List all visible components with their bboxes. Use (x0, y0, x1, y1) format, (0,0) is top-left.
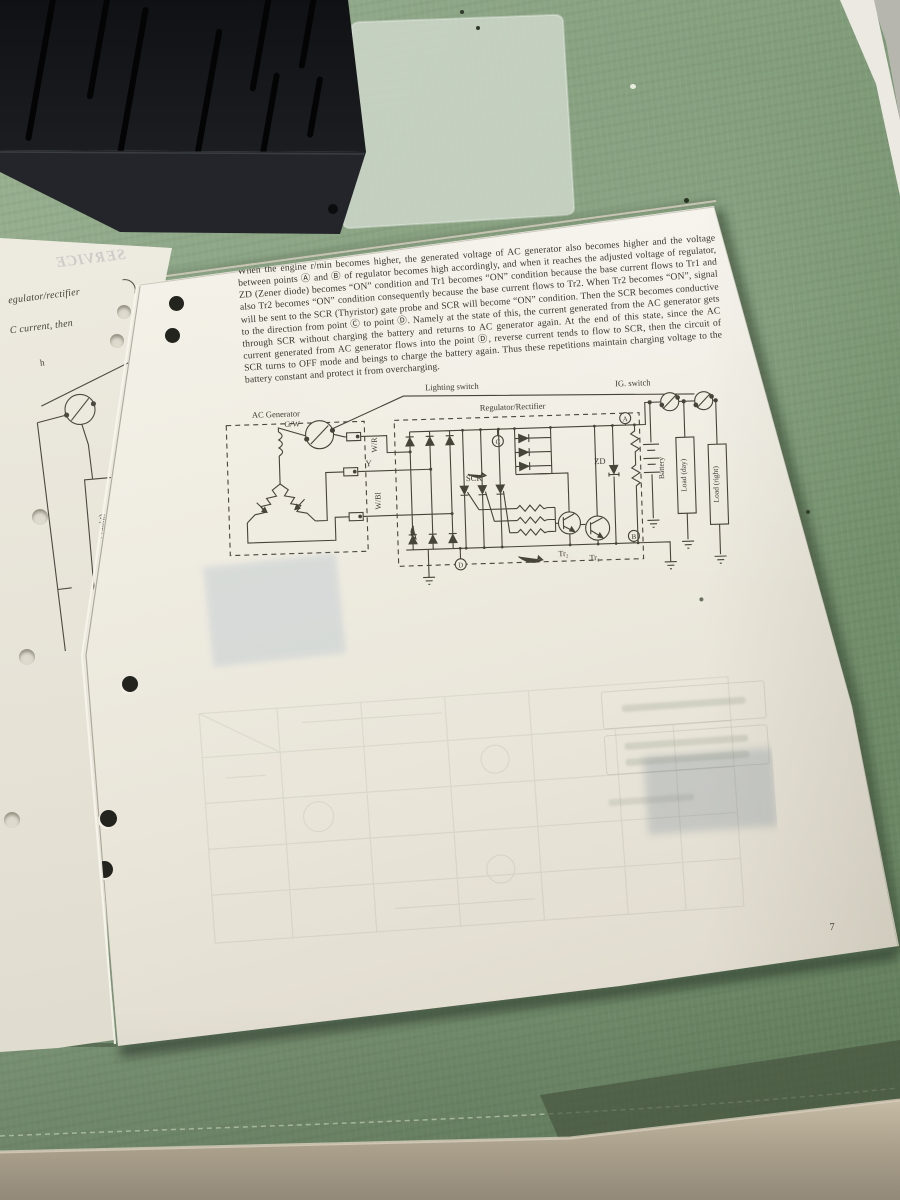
point-a-letter: A (623, 415, 628, 423)
stator-winding (279, 456, 280, 484)
lighting-switch-label: Lighting switch (425, 381, 480, 393)
gw-wire-label: G/W (284, 419, 300, 428)
wr-wire (334, 434, 347, 437)
wr-wire-label: W/R (370, 437, 379, 453)
fabric-speck (684, 198, 689, 203)
load-day-label: Load (day) (678, 458, 688, 492)
y-wire (314, 472, 345, 521)
page-number: 7 (829, 922, 835, 933)
punch-hole-light (117, 305, 131, 319)
page-content: When the engine r/min becomes higher, th… (150, 195, 846, 1068)
wbl-wire-label: W/Bl (373, 491, 383, 509)
fabric-speck (630, 84, 636, 89)
punch-hole-dark (122, 676, 138, 692)
load-right-label: Load (right) (711, 465, 721, 502)
y-wire-label: Y (365, 458, 371, 468)
punch-hole-dark (165, 328, 180, 343)
left-page-word-fragment: h (39, 357, 45, 368)
punch-hole-light (4, 812, 20, 828)
left-page-text-line: C current, then (9, 318, 73, 337)
ac-generator-label: AC Generator (252, 408, 300, 420)
zd-label: ZD (594, 456, 606, 466)
fabric-speck (460, 10, 464, 14)
bleed-through-patch (203, 554, 346, 667)
transistor-tr1 (577, 426, 610, 545)
current-arrow (257, 502, 267, 512)
scr-label: SCR (466, 473, 483, 484)
punch-hole-light (32, 509, 48, 525)
fabric-speck (476, 26, 480, 30)
point-b-letter: B (631, 533, 636, 541)
current-arrow (518, 556, 542, 563)
tr2-label: Tr₂ (558, 549, 569, 558)
current-arrow (411, 526, 416, 539)
scr-thyristors (458, 429, 510, 548)
point-d-letter: D (458, 561, 463, 569)
ig-switch-label: IG. switch (615, 377, 651, 388)
gate-resistors (479, 504, 559, 536)
point-c-letter: C (495, 438, 500, 446)
wbl-wire (247, 517, 350, 543)
photo-scene: SERVICE egulator/rectifier C current, th… (0, 0, 900, 1200)
ground-symbol (643, 542, 677, 570)
regulator-rectifier-label: Regulator/Rectifier (480, 401, 546, 413)
punch-hole-dark (100, 810, 117, 827)
fabric-speck (806, 510, 810, 514)
battery-label: Battery (656, 457, 666, 480)
left-page-partial-circle (113, 278, 138, 303)
punch-hole-light (110, 334, 124, 348)
punch-hole-dark (169, 296, 184, 311)
tr1-label: Tr₁ (589, 553, 600, 562)
ground-symbol (422, 549, 435, 584)
diode-stack (514, 427, 551, 474)
left-page-text-line: egulator/rectifier (8, 287, 81, 307)
left-page-ghost-title: SERVICE (0, 247, 127, 280)
punch-hole-light (19, 649, 35, 665)
lighting-coil (278, 432, 282, 456)
transistor-tr2 (534, 473, 581, 546)
junction-dots (408, 423, 640, 551)
